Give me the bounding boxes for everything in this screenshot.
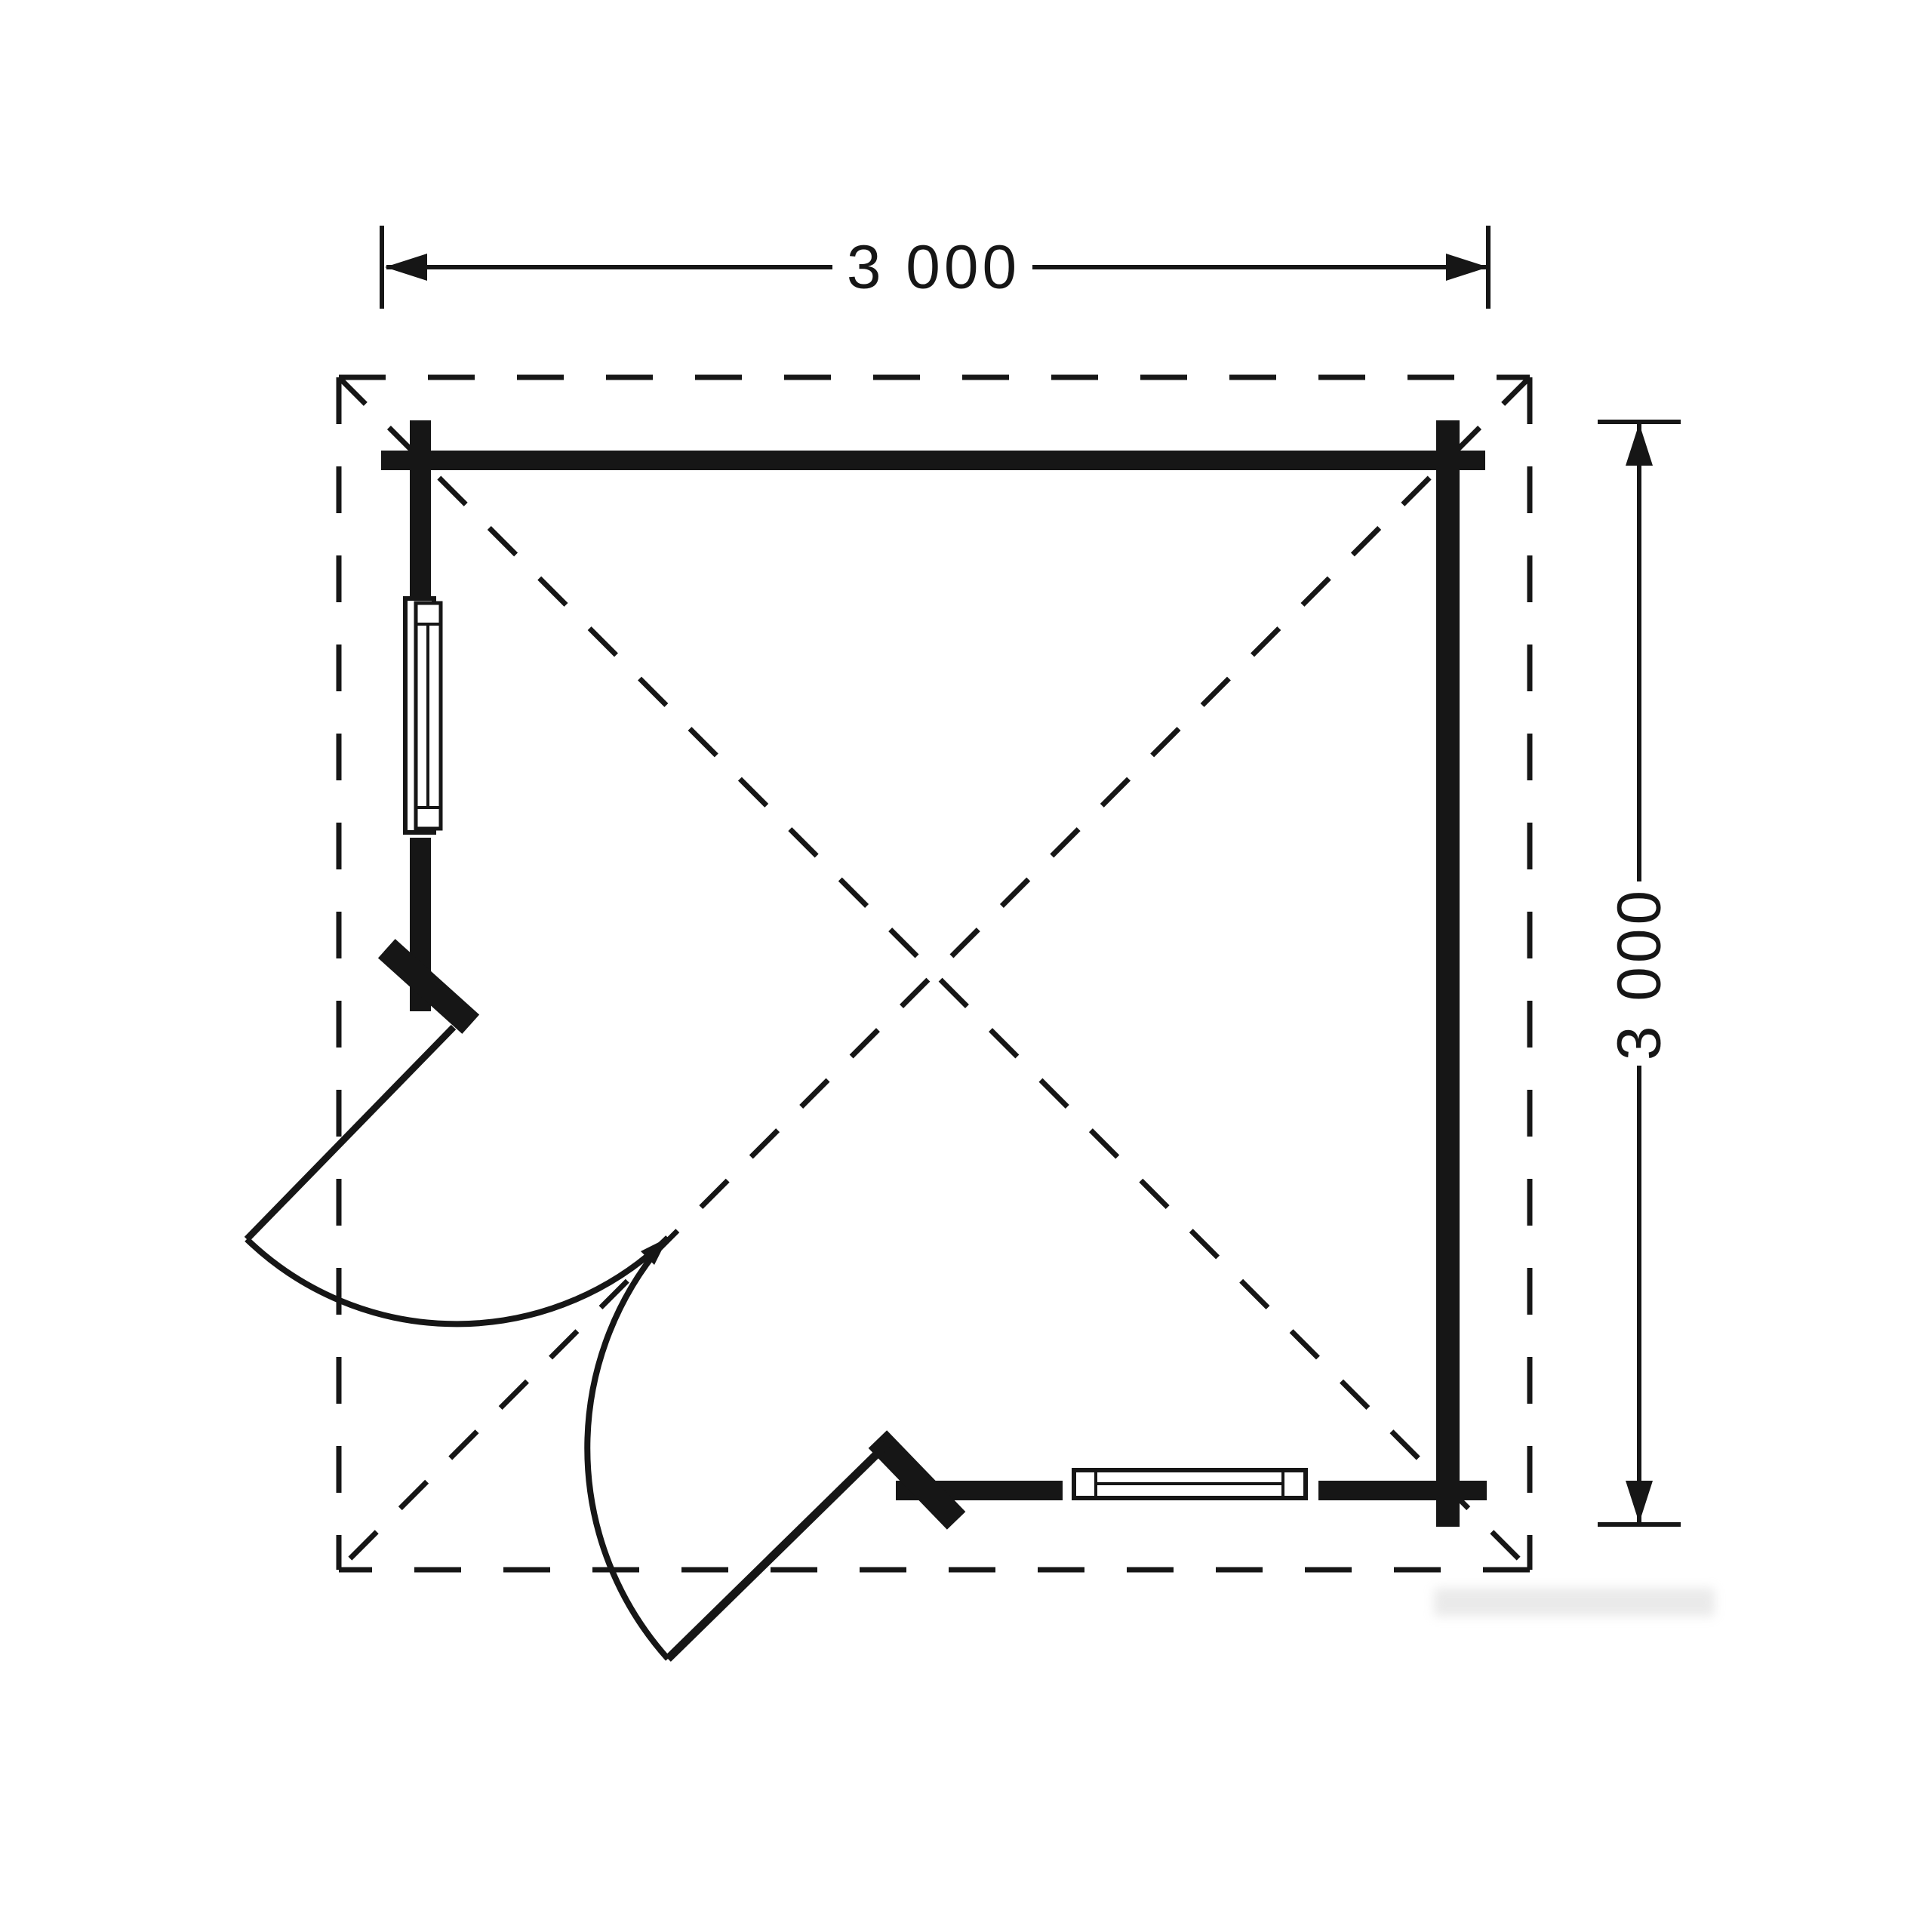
window-bottom [1074, 1470, 1306, 1498]
dim-arrow-right-icon [1446, 254, 1488, 281]
wall-right-post [1436, 420, 1460, 1527]
dimension-top: 3 000 [382, 226, 1488, 309]
dim-arrow-up-icon [1626, 423, 1653, 466]
floor-plan-canvas: 3 000 3 000 [0, 0, 1932, 1932]
floor-plan-drawing: 3 000 3 000 [0, 0, 1932, 1932]
door-bottom-open-leaf-line [668, 1438, 893, 1659]
door-left-leaf [247, 939, 668, 1324]
dimension-depth-label: 3 000 [1605, 887, 1674, 1060]
door-bottom-swing-arc [587, 1238, 668, 1659]
dim-arrow-left-icon [385, 254, 427, 281]
watermark [1434, 1588, 1715, 1617]
window-left [405, 598, 441, 832]
door-left-swing-arc [247, 1238, 668, 1324]
wall-top [381, 451, 1485, 470]
wall-left-upper-post [410, 420, 431, 596]
dimension-right: 3 000 [1598, 422, 1681, 1524]
door-left-open-leaf-line [247, 1027, 454, 1239]
wall-bottom-right-segment [1318, 1481, 1487, 1500]
roof-ridge-diagonals [339, 377, 1530, 1570]
door-bottom-leaf [587, 1238, 965, 1659]
dim-arrow-down-icon [1626, 1481, 1653, 1523]
dimension-width-label: 3 000 [847, 233, 1020, 302]
